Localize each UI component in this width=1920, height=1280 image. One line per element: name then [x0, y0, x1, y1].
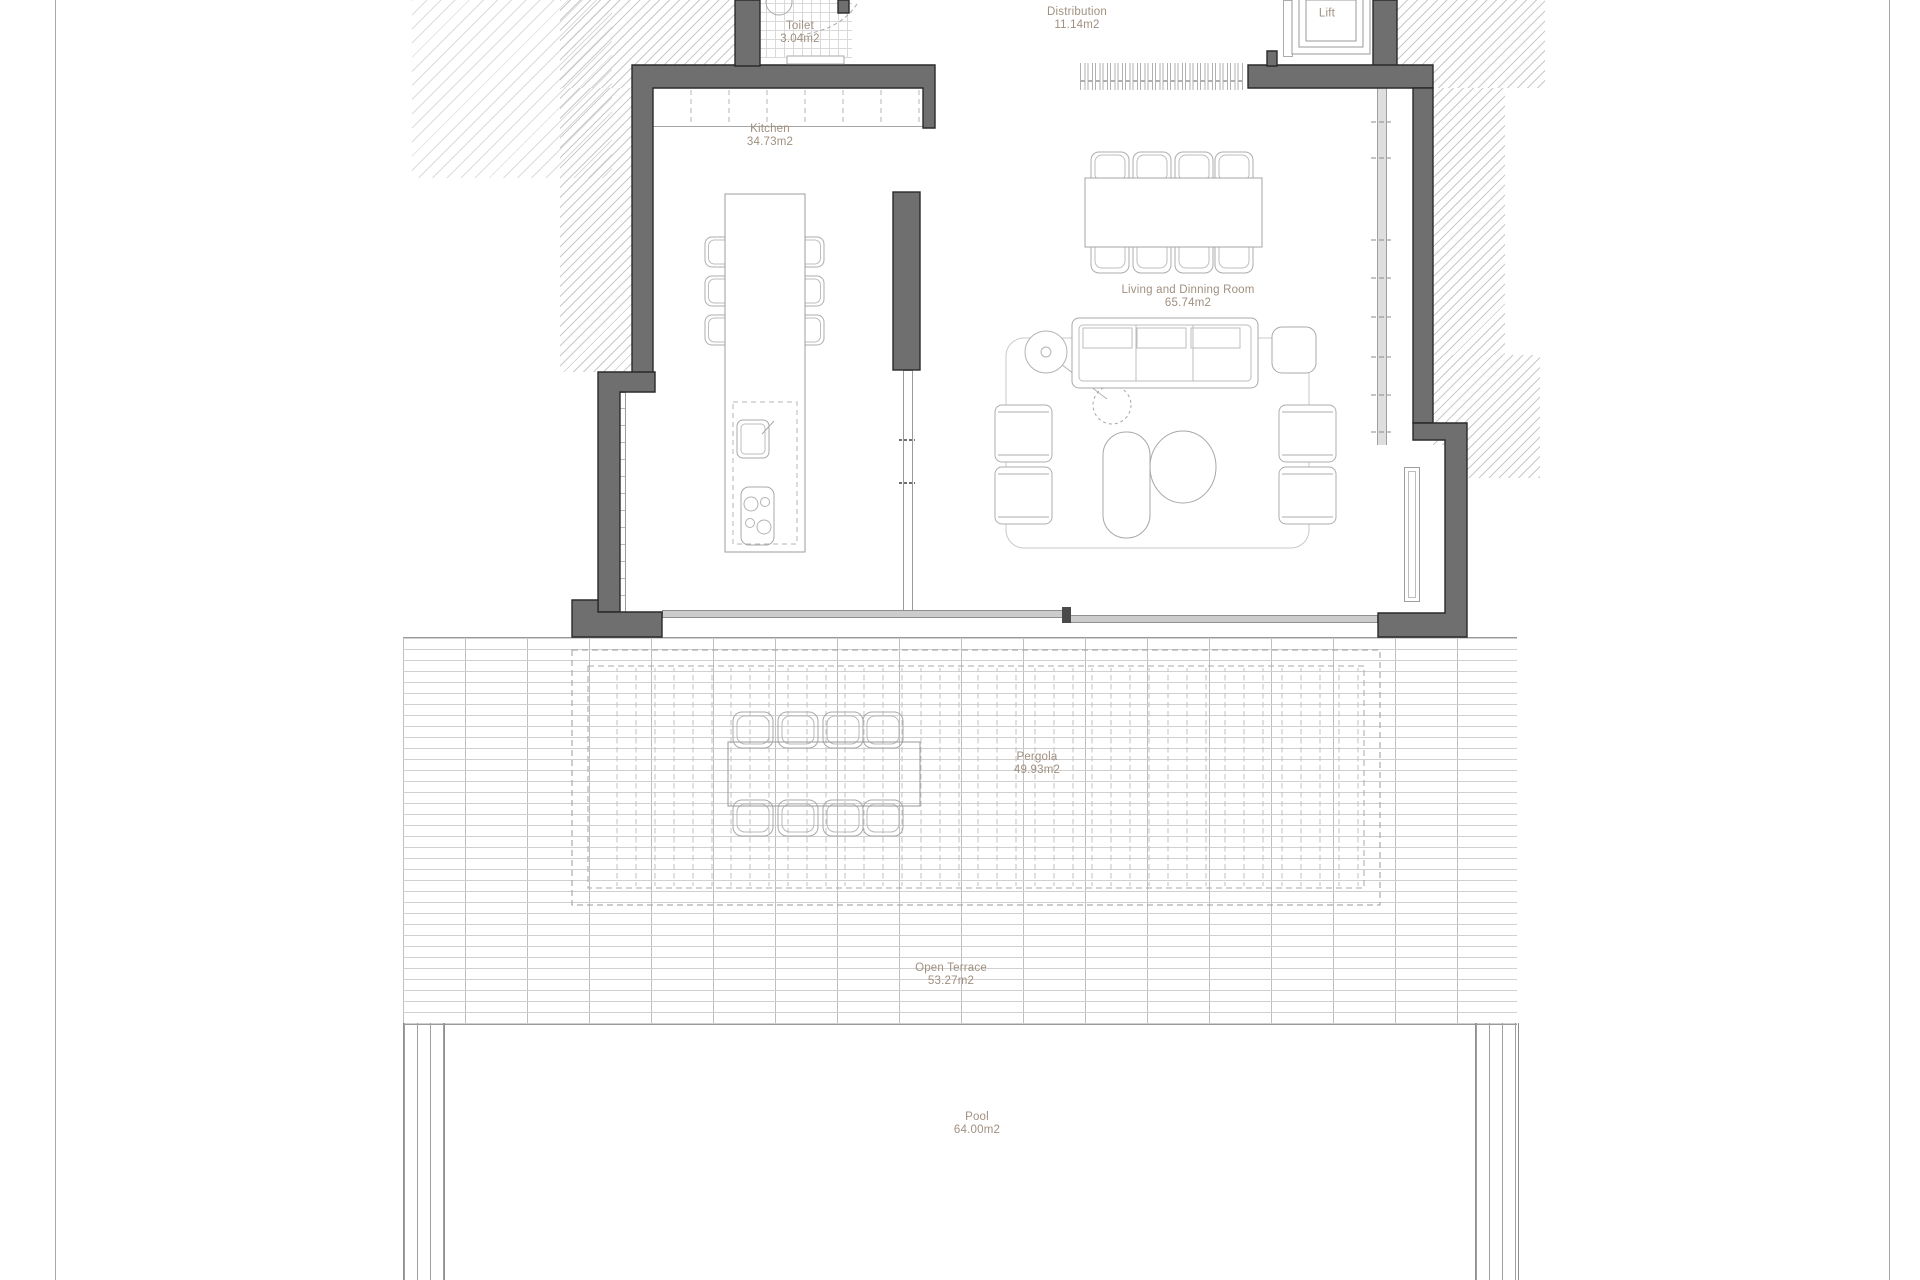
dining-table — [1085, 178, 1262, 247]
plan-drawing — [0, 0, 1920, 1280]
room-area: 3.04m2 — [780, 33, 820, 46]
wall-north-east — [1248, 65, 1433, 88]
label-pool: Pool 64.00m2 — [954, 1111, 1000, 1137]
room-name: Living and Dinning Room — [1121, 284, 1254, 297]
floor-plan-sheet: Toilet 3.04m2 Distribution 11.14m2 Lift … — [0, 0, 1920, 1280]
label-kitchen: Kitchen 34.73m2 — [747, 123, 793, 149]
room-name: Open Terrace — [915, 962, 987, 975]
room-name: Toilet — [780, 20, 820, 33]
room-name: Kitchen — [747, 123, 793, 136]
wall-lift-east — [1373, 0, 1397, 66]
dining-set — [1085, 152, 1262, 273]
room-name: Lift — [1319, 8, 1335, 21]
label-lift: Lift — [1319, 8, 1335, 21]
label-toilet: Toilet 3.04m2 — [780, 20, 820, 46]
armchair — [995, 467, 1052, 524]
toilet-vanity — [787, 56, 844, 64]
floor-lamp — [1025, 331, 1067, 373]
room-name: Distribution — [1047, 6, 1107, 19]
living-area — [995, 318, 1336, 548]
room-name: Pergola — [1014, 751, 1060, 764]
wall-nub — [1267, 51, 1277, 66]
wall-west-lower — [598, 372, 655, 612]
label-pergola: Pergola 49.93m2 — [1014, 751, 1060, 777]
coffee-table — [1103, 432, 1150, 538]
label-distribution: Distribution 11.14m2 — [1047, 6, 1107, 32]
room-area: 34.73m2 — [747, 136, 793, 149]
distribution-grille — [1080, 63, 1245, 90]
wall-east-lower — [1378, 423, 1467, 637]
room-area: 53.27m2 — [915, 975, 987, 988]
label-living-dining: Living and Dinning Room 65.74m2 — [1121, 284, 1254, 310]
sliding-door-stop — [1062, 607, 1071, 623]
room-area: 49.93m2 — [1014, 764, 1060, 777]
label-open-terrace: Open Terrace 53.27m2 — [915, 962, 987, 988]
room-area: 11.14m2 — [1047, 19, 1107, 32]
glass-mullions — [1371, 122, 1391, 432]
side-table-square — [1272, 327, 1316, 373]
armchair — [1279, 405, 1336, 462]
kitchen-island-group — [705, 194, 824, 552]
cabinet-dividers — [691, 90, 919, 126]
pergola-slats — [600, 668, 1362, 886]
coffee-table-round — [1150, 431, 1216, 503]
kitchen-island — [725, 194, 805, 552]
wall-toilet-west — [735, 0, 760, 66]
chimney-wall — [893, 192, 920, 370]
room-name: Pool — [954, 1111, 1000, 1124]
wall-east-upper — [1413, 88, 1433, 423]
pergola-structure — [572, 650, 1380, 905]
room-area: 65.74m2 — [1121, 297, 1254, 310]
armchair — [995, 405, 1052, 462]
room-area: 64.00m2 — [954, 1124, 1000, 1137]
armchair — [1279, 467, 1336, 524]
toilet-door-jamb — [838, 0, 849, 13]
wc-icon — [766, 0, 792, 15]
partition-ticks — [899, 440, 915, 483]
side-table-round — [1093, 386, 1131, 424]
